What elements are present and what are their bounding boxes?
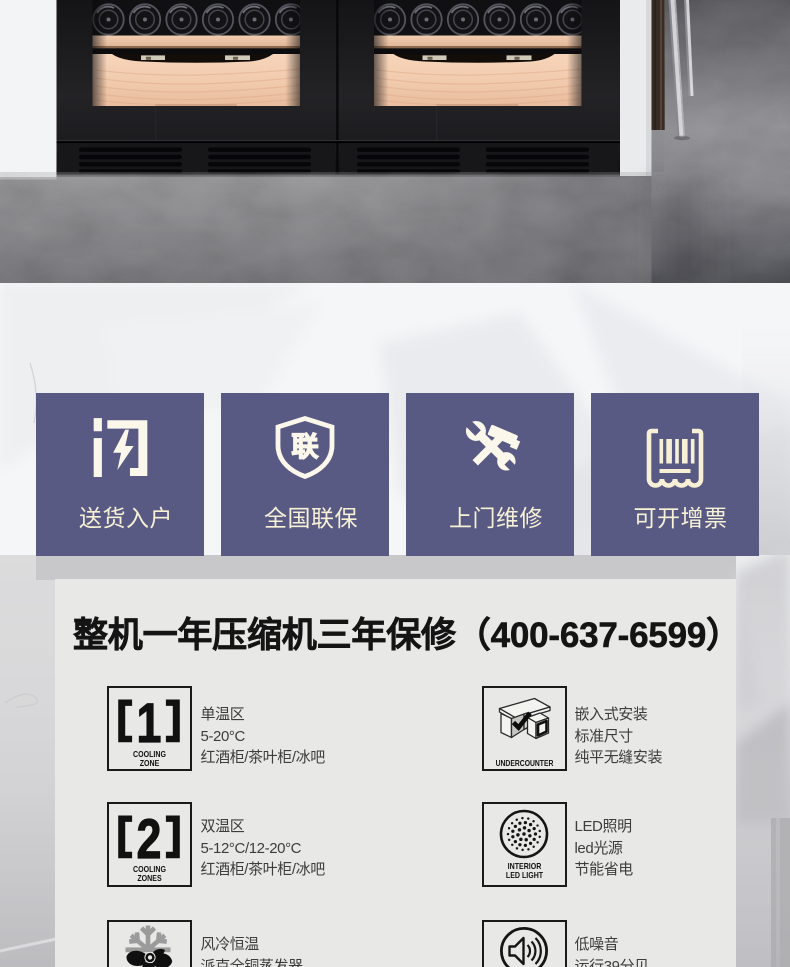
svg-text:联: 联 xyxy=(292,432,319,462)
svg-text:2: 2 xyxy=(136,807,161,870)
svg-text:1: 1 xyxy=(136,691,161,754)
